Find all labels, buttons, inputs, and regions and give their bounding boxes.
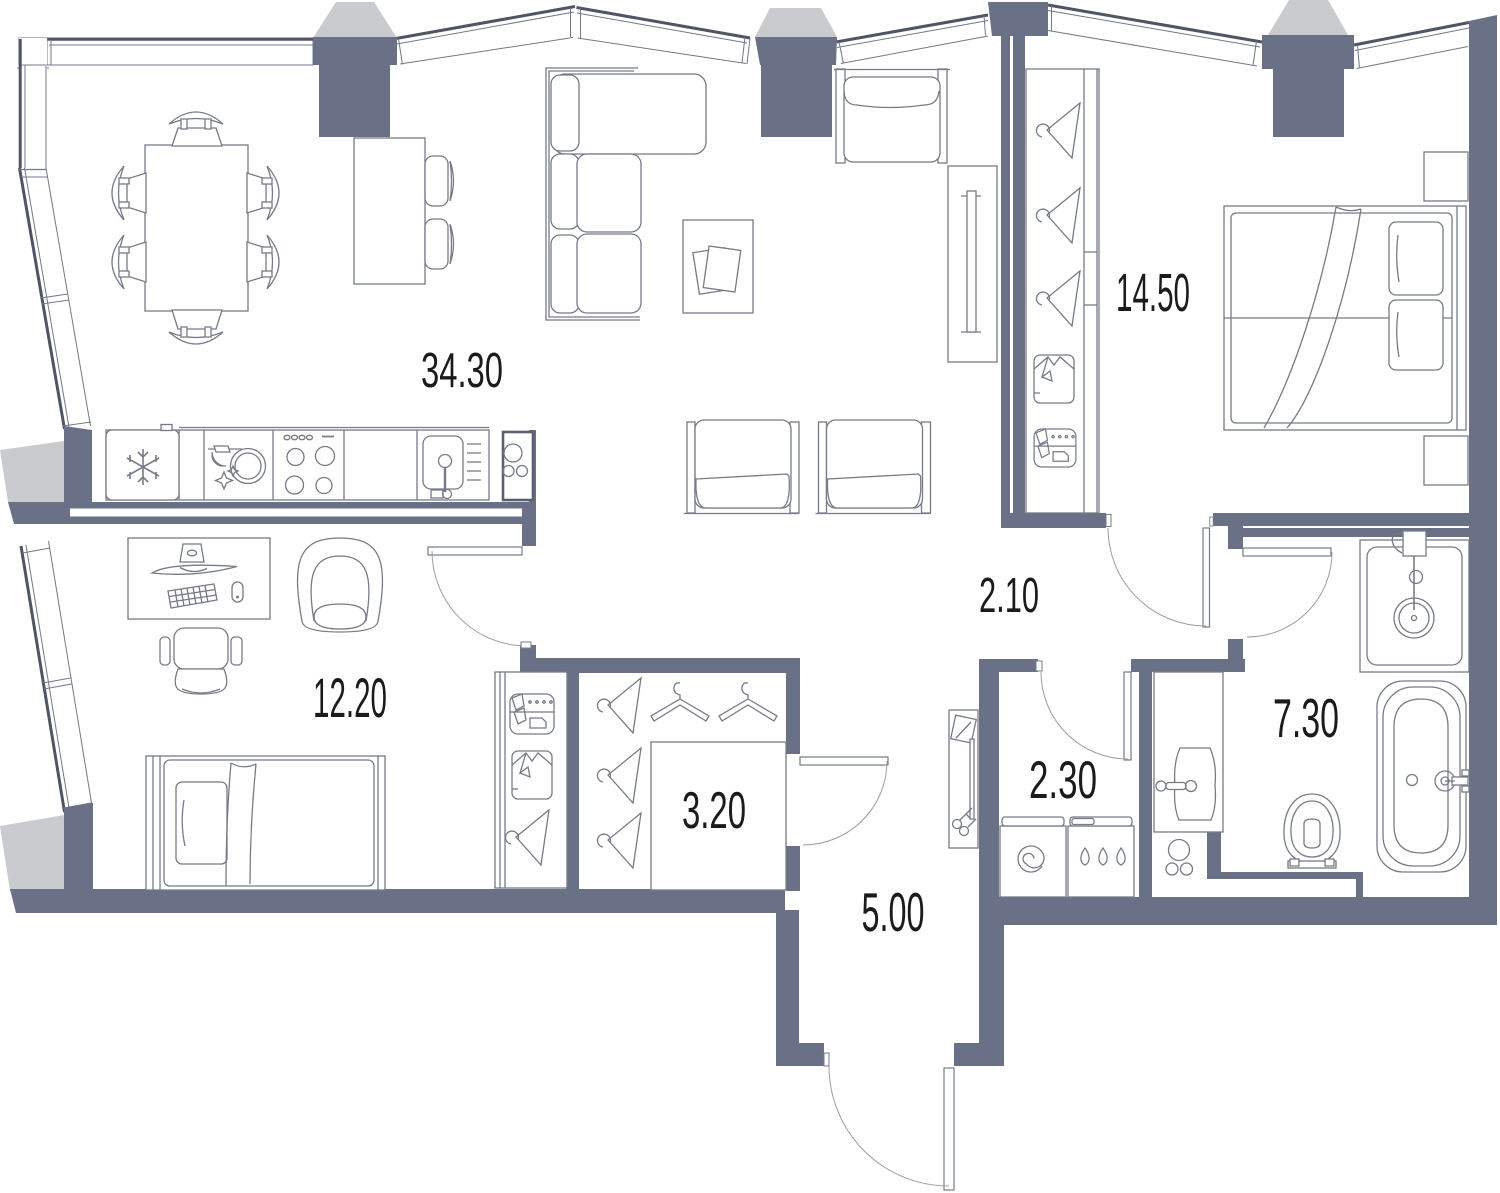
svg-text:5.00: 5.00 (862, 881, 925, 943)
svg-text:14.50: 14.50 (1116, 263, 1190, 323)
svg-text:2.10: 2.10 (979, 569, 1039, 623)
svg-text:2.30: 2.30 (1029, 751, 1097, 810)
svg-text:3.20: 3.20 (682, 782, 746, 840)
svg-text:12.20: 12.20 (313, 666, 387, 729)
svg-text:7.30: 7.30 (1273, 687, 1339, 749)
svg-text:34.30: 34.30 (421, 344, 503, 398)
